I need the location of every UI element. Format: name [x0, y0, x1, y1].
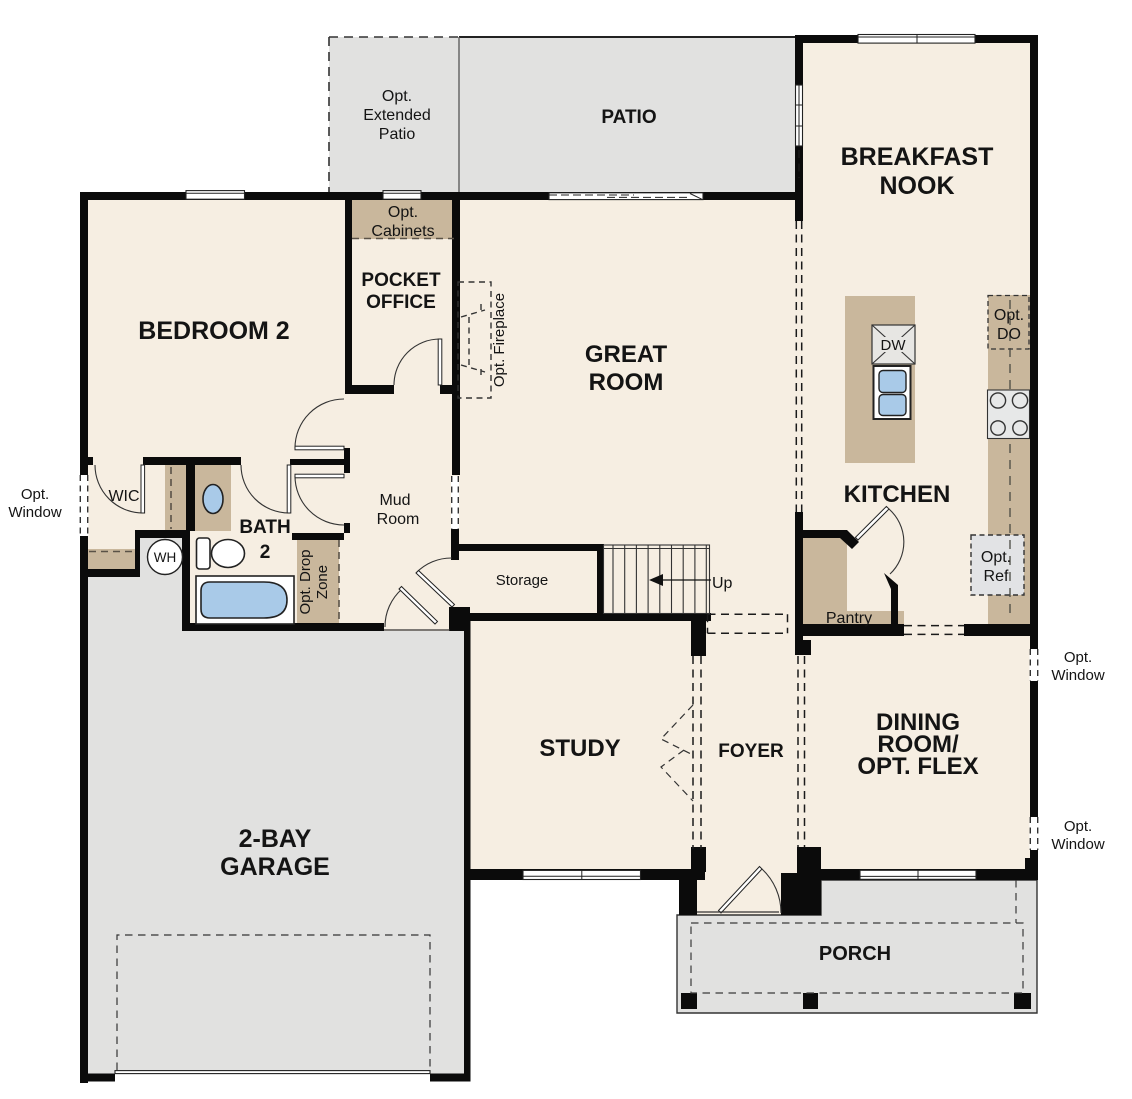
svg-text:ROOM: ROOM	[589, 369, 664, 396]
svg-text:PATIO: PATIO	[601, 107, 656, 128]
svg-text:Pantry: Pantry	[826, 610, 872, 627]
svg-text:Opt. Drop: Opt. Drop	[297, 549, 314, 614]
svg-text:POCKET: POCKET	[361, 270, 441, 291]
svg-text:GARAGE: GARAGE	[220, 853, 330, 881]
svg-text:GREAT: GREAT	[585, 341, 668, 368]
svg-text:Patio: Patio	[379, 126, 416, 143]
svg-text:PORCH: PORCH	[819, 943, 891, 965]
svg-text:FOYER: FOYER	[718, 741, 784, 762]
svg-text:BATH: BATH	[239, 517, 290, 538]
svg-text:Window: Window	[8, 504, 62, 521]
svg-text:Opt.: Opt.	[981, 549, 1011, 566]
svg-text:Zone: Zone	[314, 565, 331, 599]
svg-text:2-BAY: 2-BAY	[239, 825, 312, 853]
svg-text:WIC: WIC	[108, 488, 139, 505]
svg-text:DW: DW	[881, 337, 907, 354]
svg-text:STUDY: STUDY	[539, 735, 620, 762]
svg-text:Opt.: Opt.	[1064, 818, 1092, 835]
svg-text:OFFICE: OFFICE	[366, 292, 436, 313]
svg-text:WH: WH	[154, 550, 177, 565]
svg-text:BEDROOM 2: BEDROOM 2	[138, 317, 289, 345]
svg-text:Up: Up	[712, 575, 733, 592]
svg-text:Window: Window	[1051, 836, 1105, 853]
svg-text:Opt.: Opt.	[994, 307, 1024, 324]
svg-text:Mud: Mud	[379, 492, 410, 509]
svg-text:BREAKFAST: BREAKFAST	[841, 143, 994, 171]
svg-text:Opt. Fireplace: Opt. Fireplace	[491, 293, 508, 387]
svg-text:DO: DO	[997, 326, 1021, 343]
svg-text:Opt.: Opt.	[388, 204, 418, 221]
svg-text:OPT. FLEX: OPT. FLEX	[857, 753, 978, 780]
svg-text:Extended: Extended	[363, 107, 431, 124]
svg-text:Window: Window	[1051, 667, 1105, 684]
svg-text:Cabinets: Cabinets	[371, 223, 434, 240]
svg-text:Opt.: Opt.	[1064, 649, 1092, 666]
svg-text:Room: Room	[377, 511, 420, 528]
svg-text:2: 2	[260, 542, 271, 563]
svg-text:Opt.: Opt.	[382, 88, 412, 105]
svg-text:Storage: Storage	[496, 572, 549, 589]
svg-text:Opt.: Opt.	[21, 486, 49, 503]
svg-text:NOOK: NOOK	[880, 172, 955, 200]
svg-text:KITCHEN: KITCHEN	[844, 481, 951, 508]
svg-text:Ref: Ref	[984, 568, 1009, 585]
